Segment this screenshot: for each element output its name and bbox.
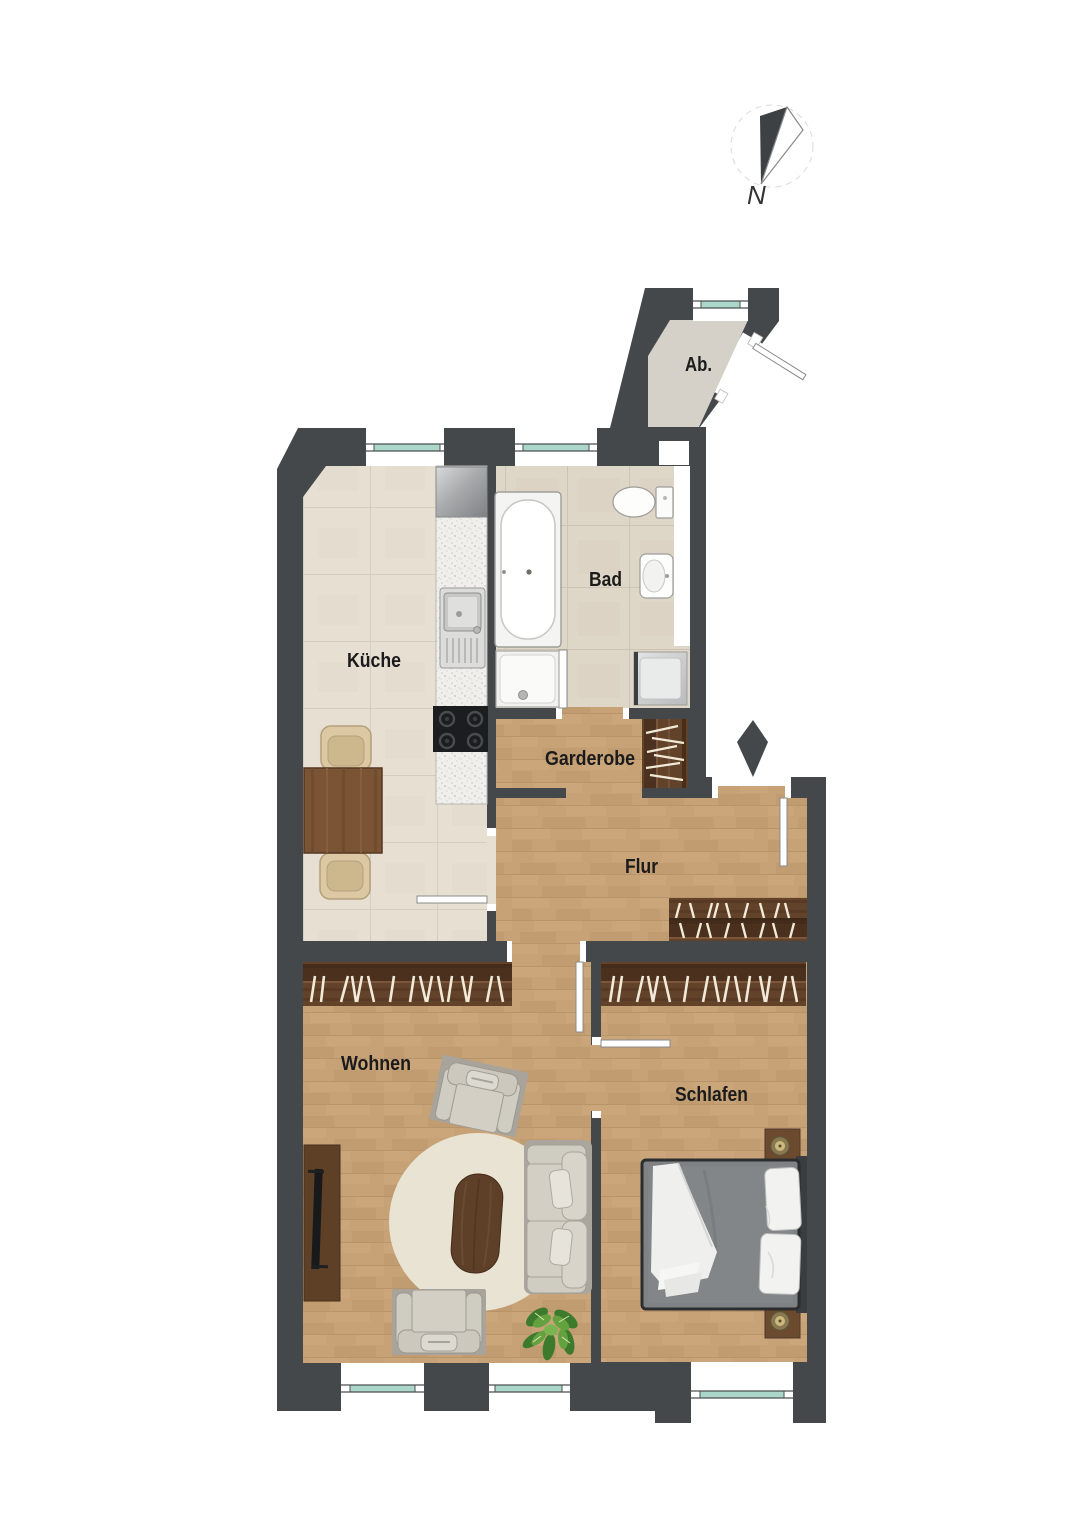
svg-text:Wohnen: Wohnen — [341, 1053, 411, 1075]
svg-text:Ab.: Ab. — [685, 354, 712, 376]
svg-text:Bad: Bad — [589, 569, 622, 591]
svg-text:Küche: Küche — [347, 650, 401, 672]
svg-text:N: N — [747, 180, 766, 210]
svg-text:Garderobe: Garderobe — [545, 748, 635, 770]
svg-text:Schlafen: Schlafen — [675, 1084, 748, 1106]
svg-text:Flur: Flur — [625, 856, 658, 878]
